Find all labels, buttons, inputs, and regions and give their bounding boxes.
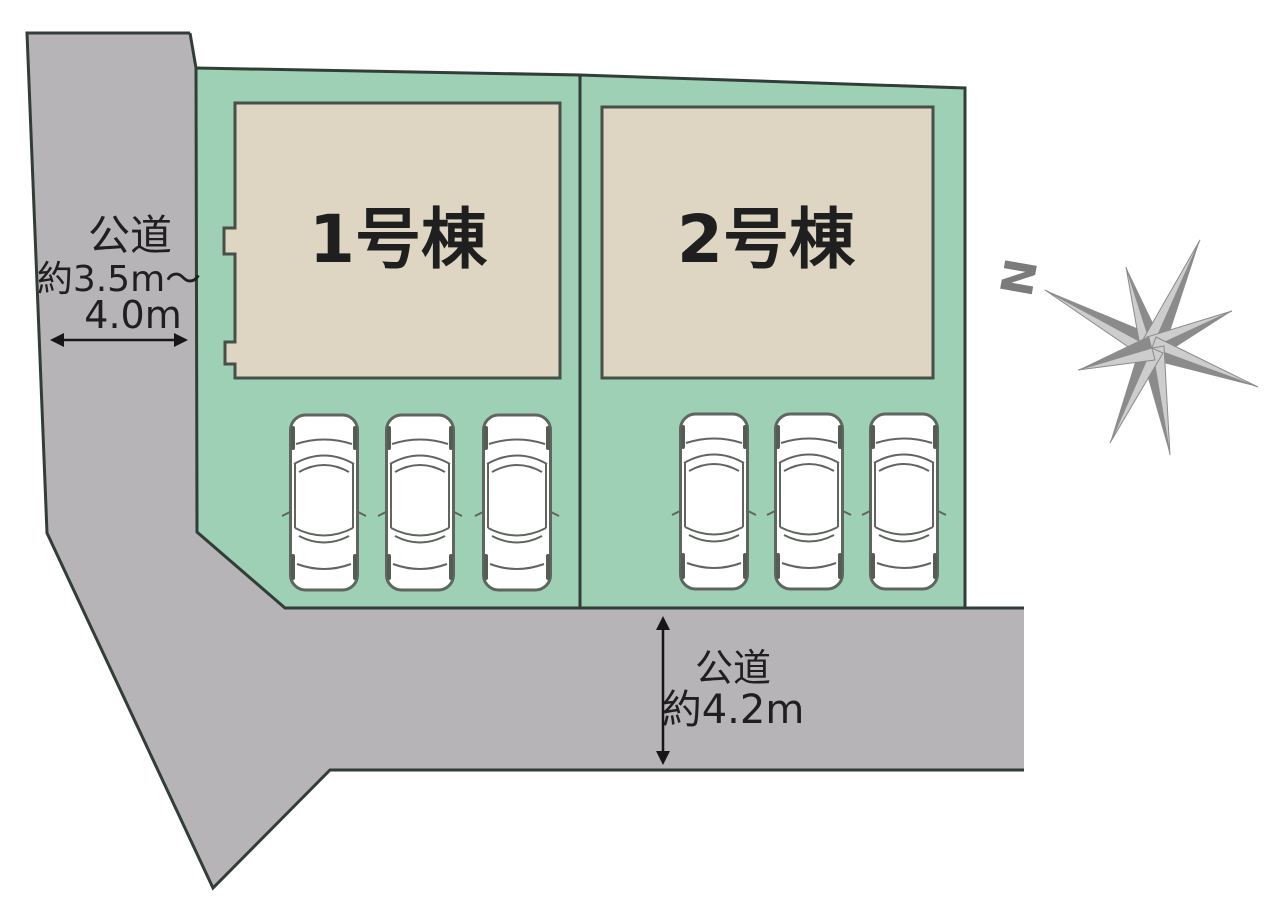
building-2-label: 2号棟: [677, 201, 856, 278]
car-icon: [767, 414, 851, 589]
building-1-label: 1号棟: [309, 201, 488, 278]
south-road-width: 約4.2m: [662, 687, 805, 733]
car-icon: [378, 415, 462, 590]
car-icon: [862, 414, 946, 589]
parking-lot-2: [672, 414, 946, 589]
west-road-name: 公道: [88, 211, 172, 260]
car-icon: [282, 415, 366, 590]
compass-rose-icon: N: [989, 240, 1258, 455]
site-plan-drawing: 1号棟 2号棟 公道 約3.5m～ 4.0m 公道 約4.2m: [0, 0, 1280, 914]
car-icon: [672, 414, 756, 589]
north-label: N: [989, 254, 1046, 299]
south-road-name: 公道: [695, 646, 771, 690]
west-road-width-line2: 4.0m: [84, 293, 181, 337]
site-plan-page: 1号棟 2号棟 公道 約3.5m～ 4.0m 公道 約4.2m: [0, 0, 1280, 914]
car-icon: [475, 415, 559, 590]
parking-lot-1: [282, 415, 559, 590]
